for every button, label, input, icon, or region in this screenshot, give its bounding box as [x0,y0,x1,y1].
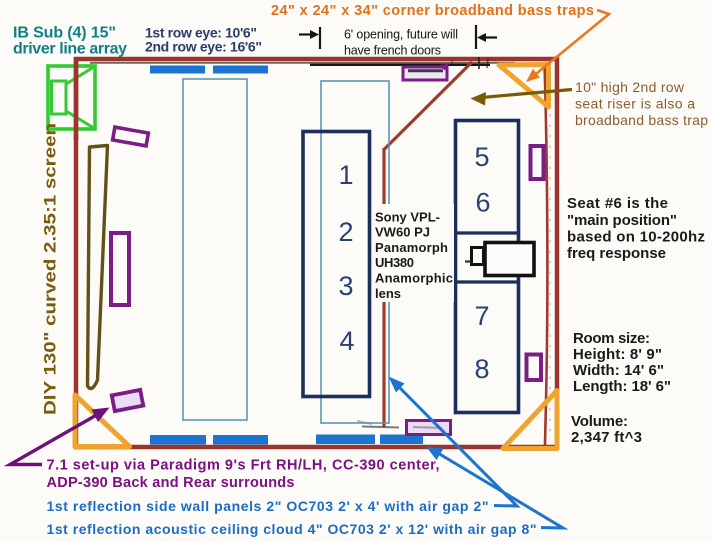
svg-text:Anamorphic: Anamorphic [375,271,453,286]
svg-text:4: 4 [339,326,354,356]
svg-text:8: 8 [474,354,489,384]
svg-text:"main position": "main position" [567,212,677,229]
svg-text:VW60 PJ: VW60 PJ [375,225,430,240]
svg-text:2,347 ft^3: 2,347 ft^3 [571,429,642,446]
svg-text:Panamorph: Panamorph [375,240,448,255]
svg-text:2nd row eye: 16'6": 2nd row eye: 16'6" [145,39,262,55]
svg-text:Volume:: Volume: [571,413,628,430]
svg-text:6' opening, future will: 6' opening, future will [344,28,458,42]
svg-text:7: 7 [474,301,489,331]
svg-text:IB Sub (4) 15": IB Sub (4) 15" [13,25,116,42]
svg-text:1: 1 [338,160,353,190]
svg-text:have french doors: have french doors [344,44,441,58]
svg-text:7.1 set-up via Paradigm 9's Fr: 7.1 set-up via Paradigm 9's Frt RH/LH, C… [47,458,440,474]
svg-text:ADP-390 Back and Rear surround: ADP-390 Back and Rear surrounds [47,475,295,491]
svg-text:6: 6 [475,188,490,218]
svg-text:lens: lens [375,286,401,301]
svg-text:5: 5 [474,142,489,172]
svg-text:DIY 130" curved 2.35:1 screen: DIY 130" curved 2.35:1 screen [41,123,60,415]
svg-text:1st reflection acoustic ceilin: 1st reflection acoustic ceiling cloud 4"… [47,521,537,537]
svg-text:24" x 24" x 34" corner broadba: 24" x 24" x 34" corner broadband bass tr… [271,3,594,19]
svg-text:Length: 18' 6": Length: 18' 6" [573,378,671,395]
svg-text:1st reflection side wall panel: 1st reflection side wall panels 2" OC703… [47,498,489,514]
svg-text:Sony VPL-: Sony VPL- [375,210,440,225]
svg-text:freq response: freq response [567,245,666,262]
svg-text:2: 2 [338,217,353,247]
svg-text:Width: 14' 6": Width: 14' 6" [573,362,664,379]
svg-text:Height: 8' 9": Height: 8' 9" [573,346,662,363]
svg-text:Seat #6 is the: Seat #6 is the [567,195,668,212]
svg-text:based on 10-200hz: based on 10-200hz [567,229,705,246]
svg-text:seat riser is also a: seat riser is also a [575,96,695,112]
svg-text:Room size:: Room size: [573,330,650,347]
svg-text:UH380: UH380 [375,255,414,270]
svg-text:broadband bass trap: broadband bass trap [575,112,708,128]
svg-text:10" high 2nd row: 10" high 2nd row [575,79,685,95]
svg-text:3: 3 [338,271,353,301]
svg-text:driver line array: driver line array [13,41,127,58]
